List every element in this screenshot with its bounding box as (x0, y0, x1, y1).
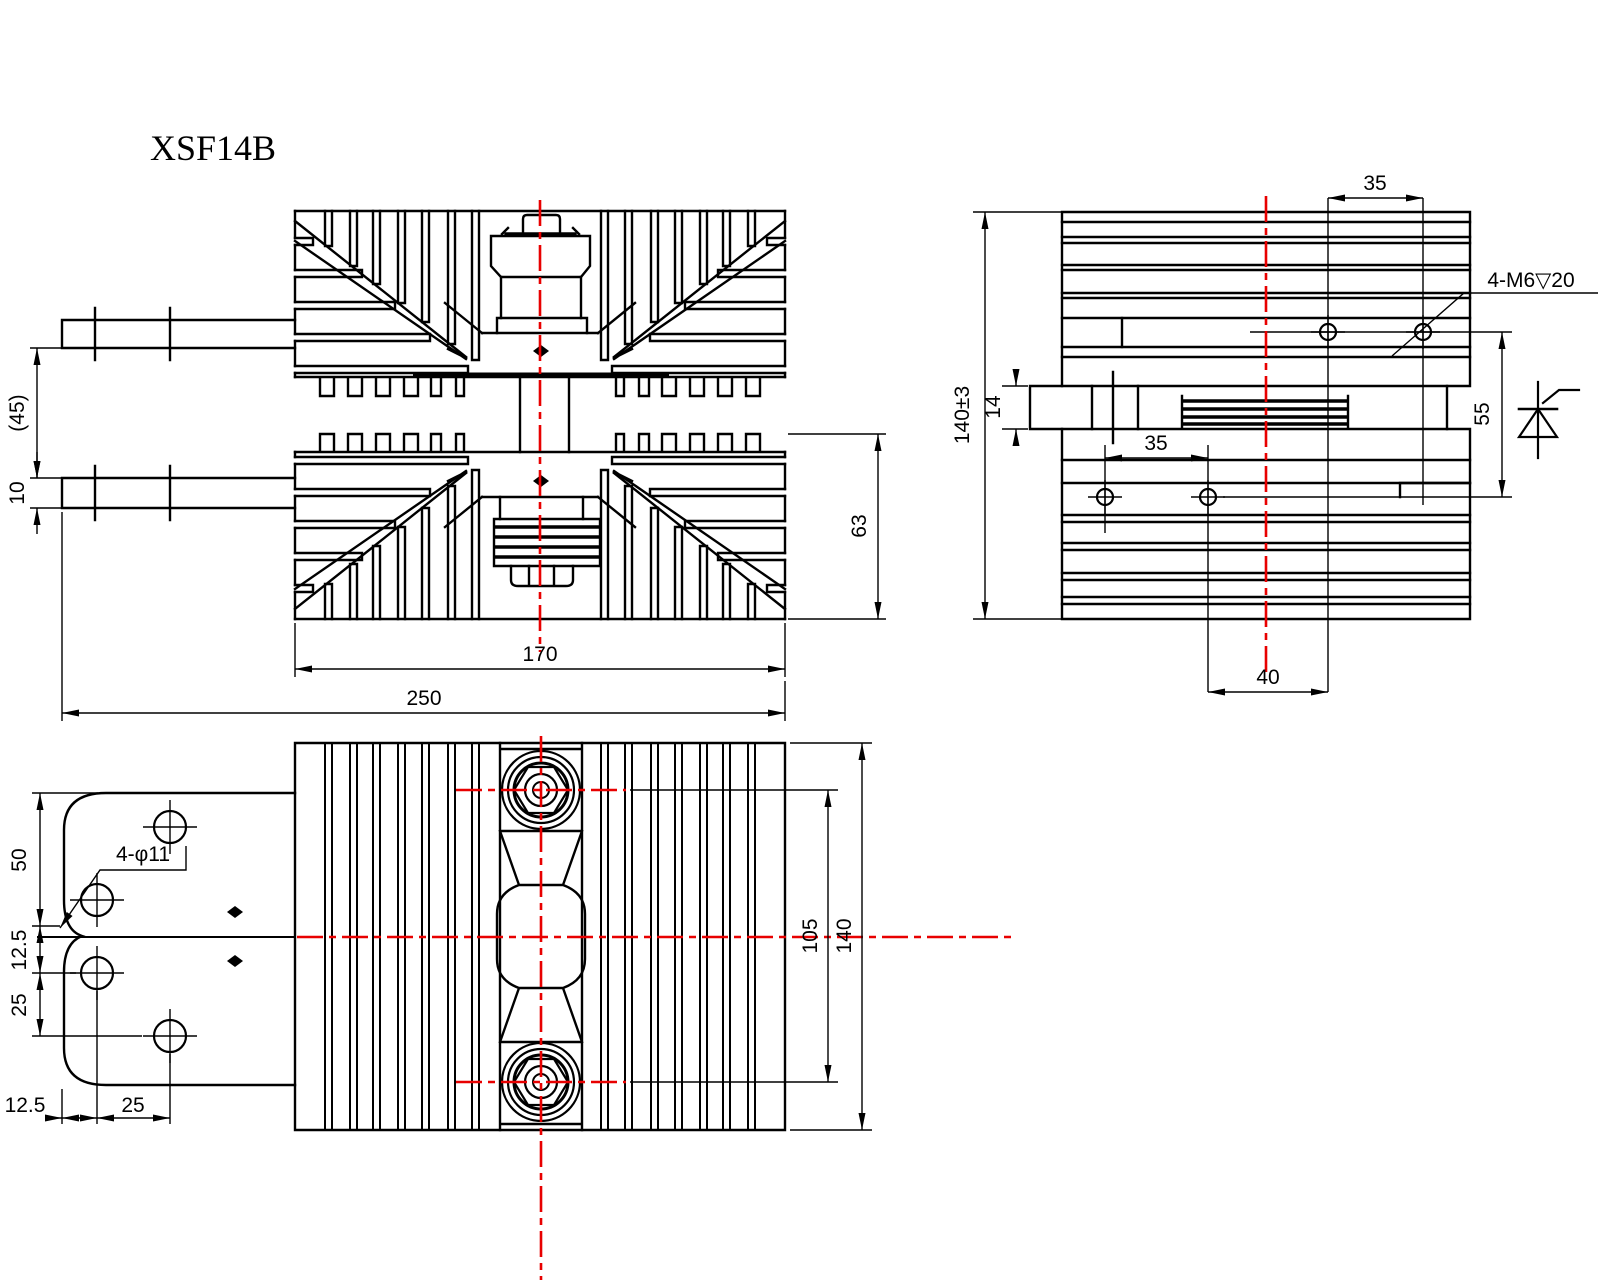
side-clamp-plate (1030, 372, 1447, 443)
front-dimensions: (45) 10 170 250 63 (6, 348, 886, 721)
dim-12-5b-label: 12.5 (5, 1094, 46, 1117)
front-view: (45) 10 170 250 63 (6, 200, 886, 721)
upper-tab (62, 320, 295, 348)
dim-50-label: 50 (8, 848, 31, 871)
hole-cross (70, 873, 124, 927)
lower-tab-ticks (95, 466, 170, 520)
hole-label: 4-φ11 (116, 843, 170, 866)
top-stud-flange (497, 318, 587, 333)
dim-105-label: 105 (799, 918, 822, 953)
side-dimensions: 35 140±3 14 35 55 40 4-M6▽20 (951, 172, 1598, 692)
bottom-stud-shank (500, 497, 583, 519)
dim-left-ext (32, 793, 142, 1036)
dim-170-label: 170 (522, 643, 557, 666)
thyristor-icon (1519, 382, 1579, 458)
device-center-column (520, 377, 569, 452)
dim-25b-label: 25 (121, 1094, 144, 1117)
dim-140-label: 140±3 (951, 386, 974, 444)
tap-label: 4-M6▽20 (1487, 269, 1574, 292)
dim-35-low-label: 35 (1144, 432, 1167, 455)
dim-35-top-label: 35 (1363, 172, 1386, 195)
dim-25-label: 25 (8, 993, 31, 1016)
dim-63-label: 63 (848, 514, 871, 537)
top-stud-nut (523, 215, 560, 233)
dim-14-ext (1002, 386, 1028, 429)
dim-bottom-ext (62, 991, 170, 1124)
thyristor-gate (1543, 390, 1579, 403)
center-mark (227, 906, 243, 918)
bottom-stud-nut (511, 566, 573, 586)
dim-10-label: 10 (6, 481, 29, 504)
bracket-outline (64, 793, 295, 1085)
bottom-stud-threads (496, 527, 598, 557)
bottom-view: 4-φ11 50 12.5 25 12.5 25 105 140 (5, 736, 1012, 1280)
bracket-hole (70, 873, 124, 927)
dim-140b-label: 140 (833, 918, 856, 953)
lower-tab (62, 478, 295, 508)
dim-55-label: 55 (1471, 402, 1494, 425)
side-view: 35 140±3 14 35 55 40 4-M6▽20 (951, 172, 1598, 692)
dim-45-label: (45) (6, 394, 29, 431)
dim-14-label: 14 (982, 395, 1005, 419)
dim-12-5-label: 12.5 (8, 930, 31, 971)
front-mounting-tabs (62, 308, 295, 520)
technical-drawing-canvas: XSF14B (0, 0, 1600, 1280)
drawing-title: XSF14B (150, 128, 276, 168)
center-mark (227, 955, 243, 967)
bottom-stud-assembly (494, 497, 600, 586)
dim-40-label: 40 (1256, 666, 1279, 689)
dim-250-label: 250 (406, 687, 441, 710)
upper-tab-ticks (95, 308, 170, 360)
mounting-bracket-plan (38, 793, 295, 1085)
side-lower-notch (1400, 483, 1470, 497)
dim-45-ext (30, 348, 62, 508)
drawing-page: XSF14B (0, 0, 1600, 1280)
dim-63-ext (788, 434, 886, 619)
side-tab-segments (1092, 386, 1138, 429)
